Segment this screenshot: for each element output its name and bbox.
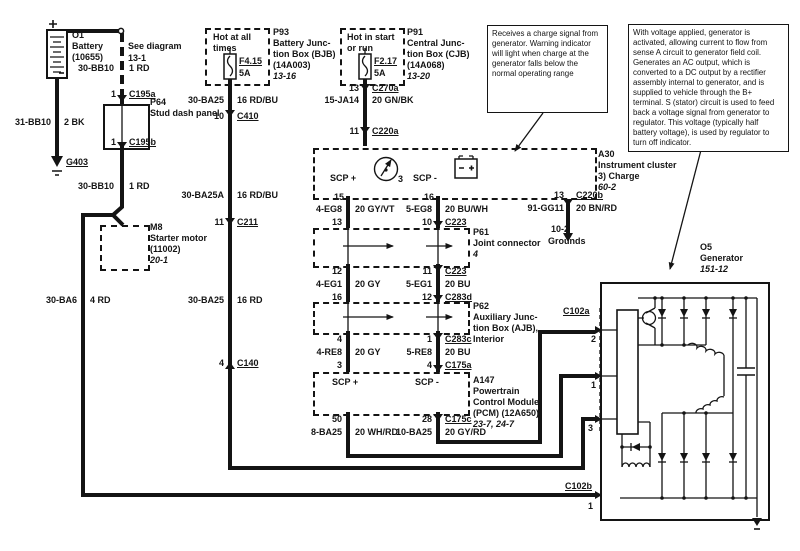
circuit-label: 8-BA25 bbox=[311, 427, 342, 437]
scp-plus-label: SCP + bbox=[330, 173, 356, 183]
circuit-label: 4-EG8 bbox=[316, 204, 342, 214]
wiring-diagram: Receives a charge signal from generator.… bbox=[0, 0, 800, 551]
connector-label: C220b bbox=[576, 190, 603, 200]
gauge-label: 1 RD bbox=[129, 63, 150, 73]
circuit-label: 15-JA14 bbox=[324, 95, 359, 105]
component-name: Interior bbox=[473, 334, 504, 344]
pin-label: 1 bbox=[591, 380, 596, 390]
component-name: Generator bbox=[700, 253, 743, 263]
gauge-label: 16 RD/BU bbox=[237, 190, 278, 200]
gauge-label: 4 RD bbox=[90, 295, 111, 305]
fuse-label: F4.15 bbox=[239, 56, 262, 66]
component-id: M8 bbox=[150, 222, 163, 232]
circuit-label: 30-BA25 bbox=[188, 95, 224, 105]
component-part: (14A003) bbox=[273, 60, 311, 70]
pin-label: 1 bbox=[111, 137, 116, 147]
component-id: P61 bbox=[473, 227, 489, 237]
circuit-label: 31-BB10 bbox=[15, 117, 51, 127]
component-name: Battery bbox=[72, 41, 103, 51]
component-id: P64 bbox=[150, 97, 166, 107]
component-part: (14A068) bbox=[407, 60, 445, 70]
page-ref: 13-16 bbox=[273, 71, 296, 81]
pin-label: 50 bbox=[332, 414, 342, 424]
component-id: P93 bbox=[273, 27, 289, 37]
pin-label: 2 bbox=[591, 334, 596, 344]
hot-label: or run bbox=[347, 43, 373, 53]
gauge-label: 1 RD bbox=[129, 181, 150, 191]
connector-label: C195b bbox=[129, 137, 156, 147]
page-ref: 13-20 bbox=[407, 71, 430, 81]
joint-connector-box bbox=[313, 228, 470, 268]
fuse-label: F2.17 bbox=[374, 56, 397, 66]
pin-label: 4 bbox=[219, 358, 224, 368]
battery-icon bbox=[47, 20, 67, 78]
gauge-label: 16 RD/BU bbox=[237, 95, 278, 105]
pin-label: 28 bbox=[422, 414, 432, 424]
gauge-label: 20 BU bbox=[445, 279, 471, 289]
pin-label: 11 bbox=[349, 126, 359, 136]
component-item: 3) Charge bbox=[598, 171, 640, 181]
hot-label: times bbox=[213, 43, 237, 53]
pin-label: 15 bbox=[334, 192, 344, 202]
connector-label: C410 bbox=[237, 111, 259, 121]
pin-label: 1 bbox=[111, 89, 116, 99]
component-id: O5 bbox=[700, 242, 712, 252]
connector-label: C223 bbox=[445, 217, 467, 227]
see-diagram-ref: 13-1 bbox=[128, 53, 146, 63]
connector-label: C270a bbox=[372, 83, 399, 93]
circuit-label: 4-EG1 bbox=[316, 279, 342, 289]
gauge-label: 20 BN/RD bbox=[576, 203, 617, 213]
pin-label: 12 bbox=[422, 292, 432, 302]
connector-label: C175a bbox=[445, 360, 472, 370]
junction-terminal bbox=[118, 28, 123, 33]
connector-label-c211: C211 bbox=[237, 217, 258, 227]
ground-symbol-g403 bbox=[51, 156, 63, 175]
scp-plus-label: SCP + bbox=[332, 377, 358, 387]
component-part: (11002) bbox=[150, 244, 181, 254]
component-id: P91 bbox=[407, 27, 423, 37]
cluster-item-number: 3 bbox=[398, 174, 403, 184]
component-name: Powertrain bbox=[473, 386, 520, 396]
connector-label: C223 bbox=[445, 266, 467, 276]
connector-label: C283d bbox=[445, 292, 472, 302]
hot-label: Hot at all bbox=[213, 32, 251, 42]
see-diagram-label: See diagram bbox=[128, 41, 182, 51]
pin-label: 11 bbox=[214, 217, 224, 227]
circuit-label: 30-BA25 bbox=[188, 295, 224, 305]
page-ref: 4 bbox=[473, 249, 478, 259]
pin-label: 13 bbox=[554, 190, 564, 200]
hot-label: Hot in start bbox=[347, 32, 395, 42]
circuit-label: 30-BA25A bbox=[181, 190, 224, 200]
page-ref: 20-1 bbox=[150, 255, 168, 265]
circuit-label: 30-BA6 bbox=[46, 295, 77, 305]
fuse-amps: 5A bbox=[374, 68, 386, 78]
gauge-label: 20 GY bbox=[355, 279, 381, 289]
component-name: Stud dash panel bbox=[150, 108, 220, 118]
gauge-label: 20 WH/RD bbox=[355, 427, 398, 437]
circuit-label: 30-BB10 bbox=[78, 181, 114, 191]
pin-label: 13 bbox=[332, 217, 342, 227]
gauge-label: 20 BU bbox=[445, 347, 471, 357]
pin-label: 3 bbox=[337, 360, 342, 370]
component-name: Central Junc- bbox=[407, 38, 465, 48]
pin-label: 4 bbox=[337, 334, 342, 344]
note-generator-operation: With voltage applied, generator is activ… bbox=[628, 24, 789, 152]
component-name: Auxiliary Junc- bbox=[473, 312, 538, 322]
component-name: tion Box (CJB) bbox=[407, 49, 470, 59]
component-id: P62 bbox=[473, 301, 489, 311]
connector-label: C175c bbox=[445, 414, 472, 424]
pin-label: 1 bbox=[427, 334, 432, 344]
connector-label: C102a bbox=[563, 306, 590, 316]
connector-label-c140: C140 bbox=[237, 358, 259, 368]
grounds-ref: 10-2 bbox=[551, 224, 569, 234]
gauge-label: 20 GY bbox=[355, 347, 381, 357]
connector-label: C102b bbox=[565, 481, 592, 491]
circuit-label: 5-RE8 bbox=[406, 347, 432, 357]
ajb-box bbox=[313, 302, 470, 335]
pin-label: 3 bbox=[588, 423, 593, 433]
component-name: tion Box (AJB), bbox=[473, 323, 538, 333]
gauge-label: 20 GY/VT bbox=[355, 204, 395, 214]
pin-label: 10 bbox=[214, 111, 224, 121]
ground-label: G403 bbox=[66, 157, 88, 167]
component-name: tion Box (BJB) bbox=[273, 49, 336, 59]
gauge-label: 20 GY/RD bbox=[445, 427, 486, 437]
pin-label: 16 bbox=[424, 192, 434, 202]
pin-label: 13 bbox=[349, 83, 359, 93]
component-name: Control Module bbox=[473, 397, 539, 407]
circuit-label: 4-RE8 bbox=[316, 347, 342, 357]
component-id: A30 bbox=[598, 149, 615, 159]
circuit-label: 5-EG8 bbox=[406, 204, 432, 214]
scp-minus-label: SCP - bbox=[413, 173, 437, 183]
grounds-label: Grounds bbox=[548, 236, 586, 246]
pin-label: 10 bbox=[422, 217, 432, 227]
component-name: Battery Junc- bbox=[273, 38, 331, 48]
pin-label: 16 bbox=[332, 292, 342, 302]
gauge-label: 16 RD bbox=[237, 295, 263, 305]
component-part: (PCM) (12A650) bbox=[473, 408, 539, 418]
note-charge-indicator: Receives a charge signal from generator.… bbox=[487, 25, 608, 113]
component-name: Starter motor bbox=[150, 233, 207, 243]
gauge-label: 20 GN/BK bbox=[372, 95, 414, 105]
starter-motor-box bbox=[100, 225, 150, 271]
connector-label: C283c bbox=[445, 334, 472, 344]
pin-label: 1 bbox=[588, 501, 593, 511]
circuit-label: 91-GG11 bbox=[527, 203, 564, 213]
component-id: O1 bbox=[72, 30, 84, 40]
scp-minus-label: SCP - bbox=[415, 377, 439, 387]
component-name: Instrument cluster bbox=[598, 160, 677, 170]
component-part: (10655) bbox=[72, 52, 103, 62]
component-id: A147 bbox=[473, 375, 495, 385]
connector-label: C220a bbox=[372, 126, 399, 136]
pin-label: 12 bbox=[332, 266, 342, 276]
pin-label: 4 bbox=[427, 360, 432, 370]
generator-box bbox=[600, 282, 770, 521]
circuit-label: 10-BA25 bbox=[396, 427, 432, 437]
note1-arrow bbox=[515, 113, 543, 151]
component-name: Joint connector bbox=[473, 238, 541, 248]
fuse-amps: 5A bbox=[239, 68, 251, 78]
circuit-label: 5-EG1 bbox=[406, 279, 432, 289]
gauge-label: 2 BK bbox=[64, 117, 85, 127]
page-ref: 151-12 bbox=[700, 264, 728, 274]
gauge-label: 20 BU/WH bbox=[445, 204, 488, 214]
circuit-label: 30-BB10 bbox=[78, 63, 114, 73]
pin-label: 11 bbox=[422, 266, 432, 276]
